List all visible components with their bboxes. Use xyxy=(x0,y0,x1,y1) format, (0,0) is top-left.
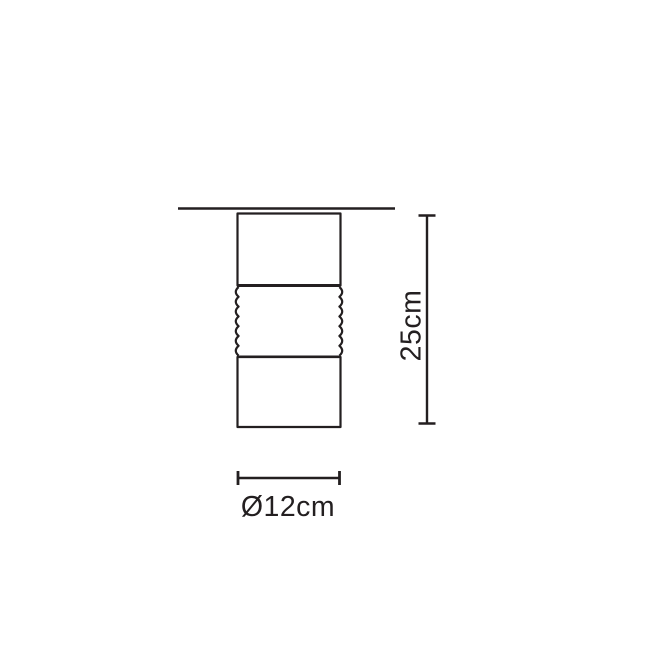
lamp-ribbed-right-edge xyxy=(339,287,342,356)
diameter-dimension-label: Ø12cm xyxy=(241,491,335,523)
lamp-bottom-section xyxy=(238,357,341,427)
lamp-dimension-diagram: 25cm Ø12cm xyxy=(0,0,650,650)
height-dimension-label: 25cm xyxy=(396,290,428,362)
lamp-ribbed-left-edge xyxy=(236,287,239,356)
dimension-diagram-page: 25cm Ø12cm xyxy=(0,0,650,650)
lamp-top-section xyxy=(238,214,341,286)
diameter-dimension xyxy=(238,471,340,485)
